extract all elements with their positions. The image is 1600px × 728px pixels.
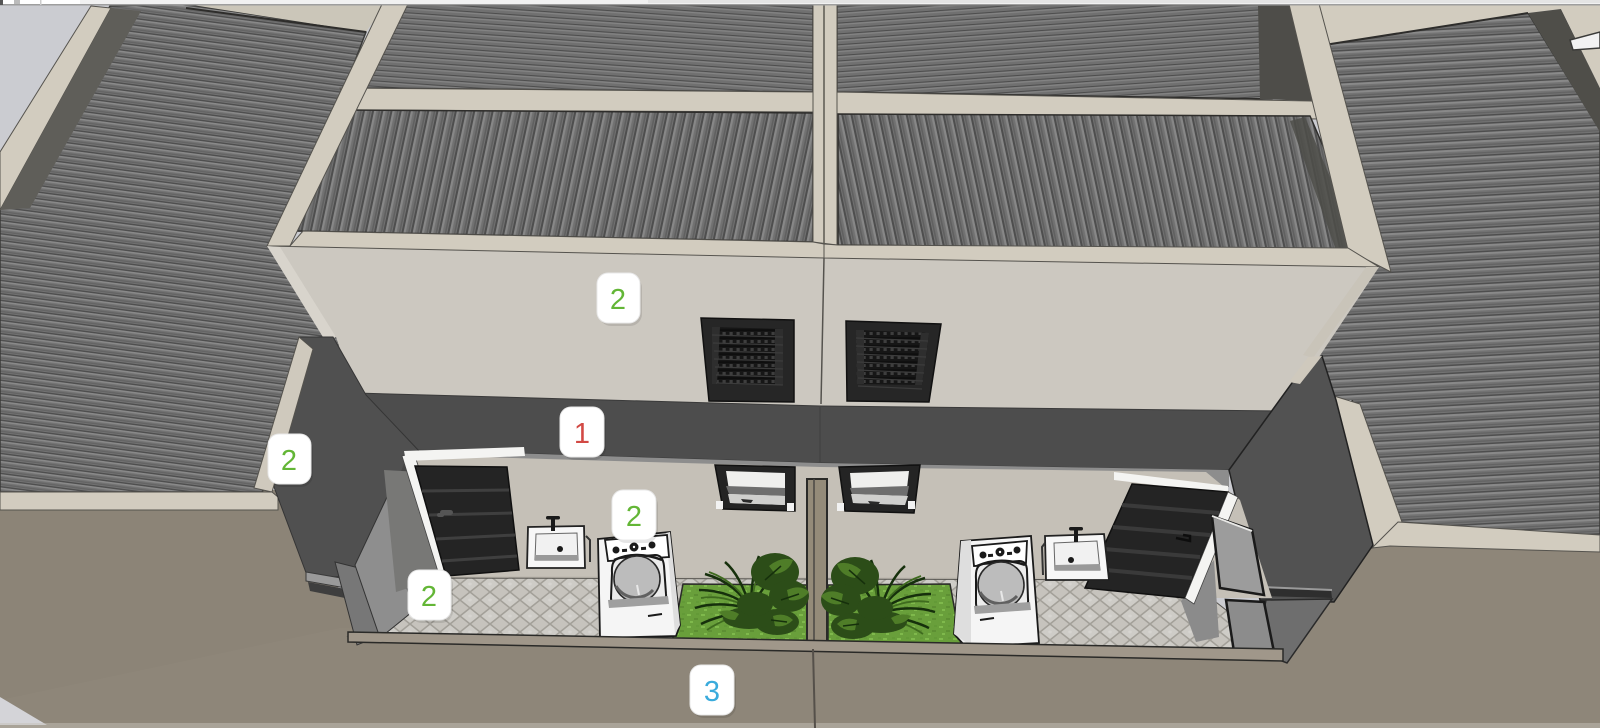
svg-text:2: 2: [610, 284, 626, 316]
svg-text:1: 1: [574, 418, 590, 450]
svg-text:2: 2: [626, 501, 642, 533]
svg-text:3: 3: [704, 676, 720, 708]
svg-text:2: 2: [421, 581, 437, 613]
svg-text:2: 2: [281, 445, 297, 477]
